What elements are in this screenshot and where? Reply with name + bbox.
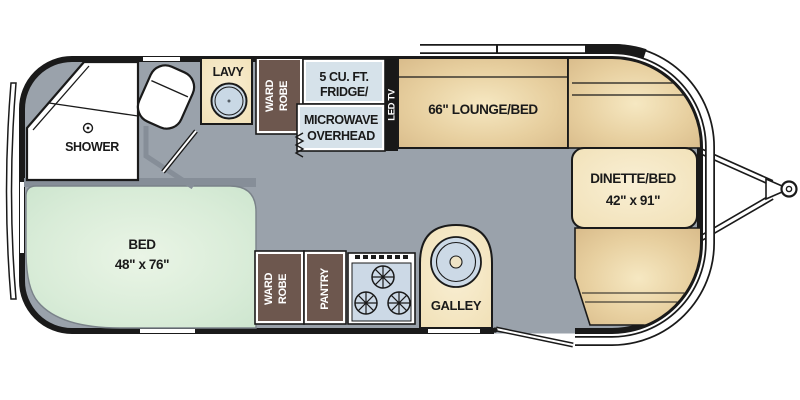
burner-1 <box>372 266 394 288</box>
bed-label-2: 48" x 76" <box>115 257 169 272</box>
wardrobe-top-label-2: ROBE <box>278 81 290 111</box>
fridge-label-1: 5 CU. FT. <box>319 70 368 84</box>
wardrobe-bottom-label-1: WARD <box>263 273 275 305</box>
dinette-table <box>572 148 697 228</box>
burner-2 <box>355 292 377 314</box>
floorplan-canvas: SHOWER LAVY WARD ROBE 5 CU. FT. FRIDGE/ … <box>0 0 800 400</box>
pantry-label: PANTRY <box>319 267 331 310</box>
lavy-label: LAVY <box>213 65 245 79</box>
entry-door <box>492 326 575 345</box>
shower-label: SHOWER <box>65 140 119 154</box>
microwave-label-2: OVERHEAD <box>307 129 375 143</box>
stove-cooktop <box>348 253 415 324</box>
led-tv-label: LED TV <box>387 88 398 120</box>
bed-label-1: BED <box>128 237 156 252</box>
microwave-label-1: MICROWAVE <box>304 113 378 127</box>
trailer-floorplan: SHOWER LAVY WARD ROBE 5 CU. FT. FRIDGE/ … <box>0 0 800 400</box>
dinette-label-1: DINETTE/BED <box>590 171 676 186</box>
front-corner-bench <box>568 56 703 148</box>
lounge-label: 66" LOUNGE/BED <box>428 102 538 117</box>
galley-label: GALLEY <box>431 298 482 313</box>
fridge-label-2: FRIDGE/ <box>320 85 369 99</box>
wardrobe-top-label-1: WARD <box>264 80 276 112</box>
rear-bumper <box>7 83 17 299</box>
burner-3 <box>388 292 410 314</box>
hitch-coupler <box>766 179 797 199</box>
wardrobe-bottom-label-2: ROBE <box>277 274 289 304</box>
dinette-label-2: 42" x 91" <box>606 193 660 208</box>
